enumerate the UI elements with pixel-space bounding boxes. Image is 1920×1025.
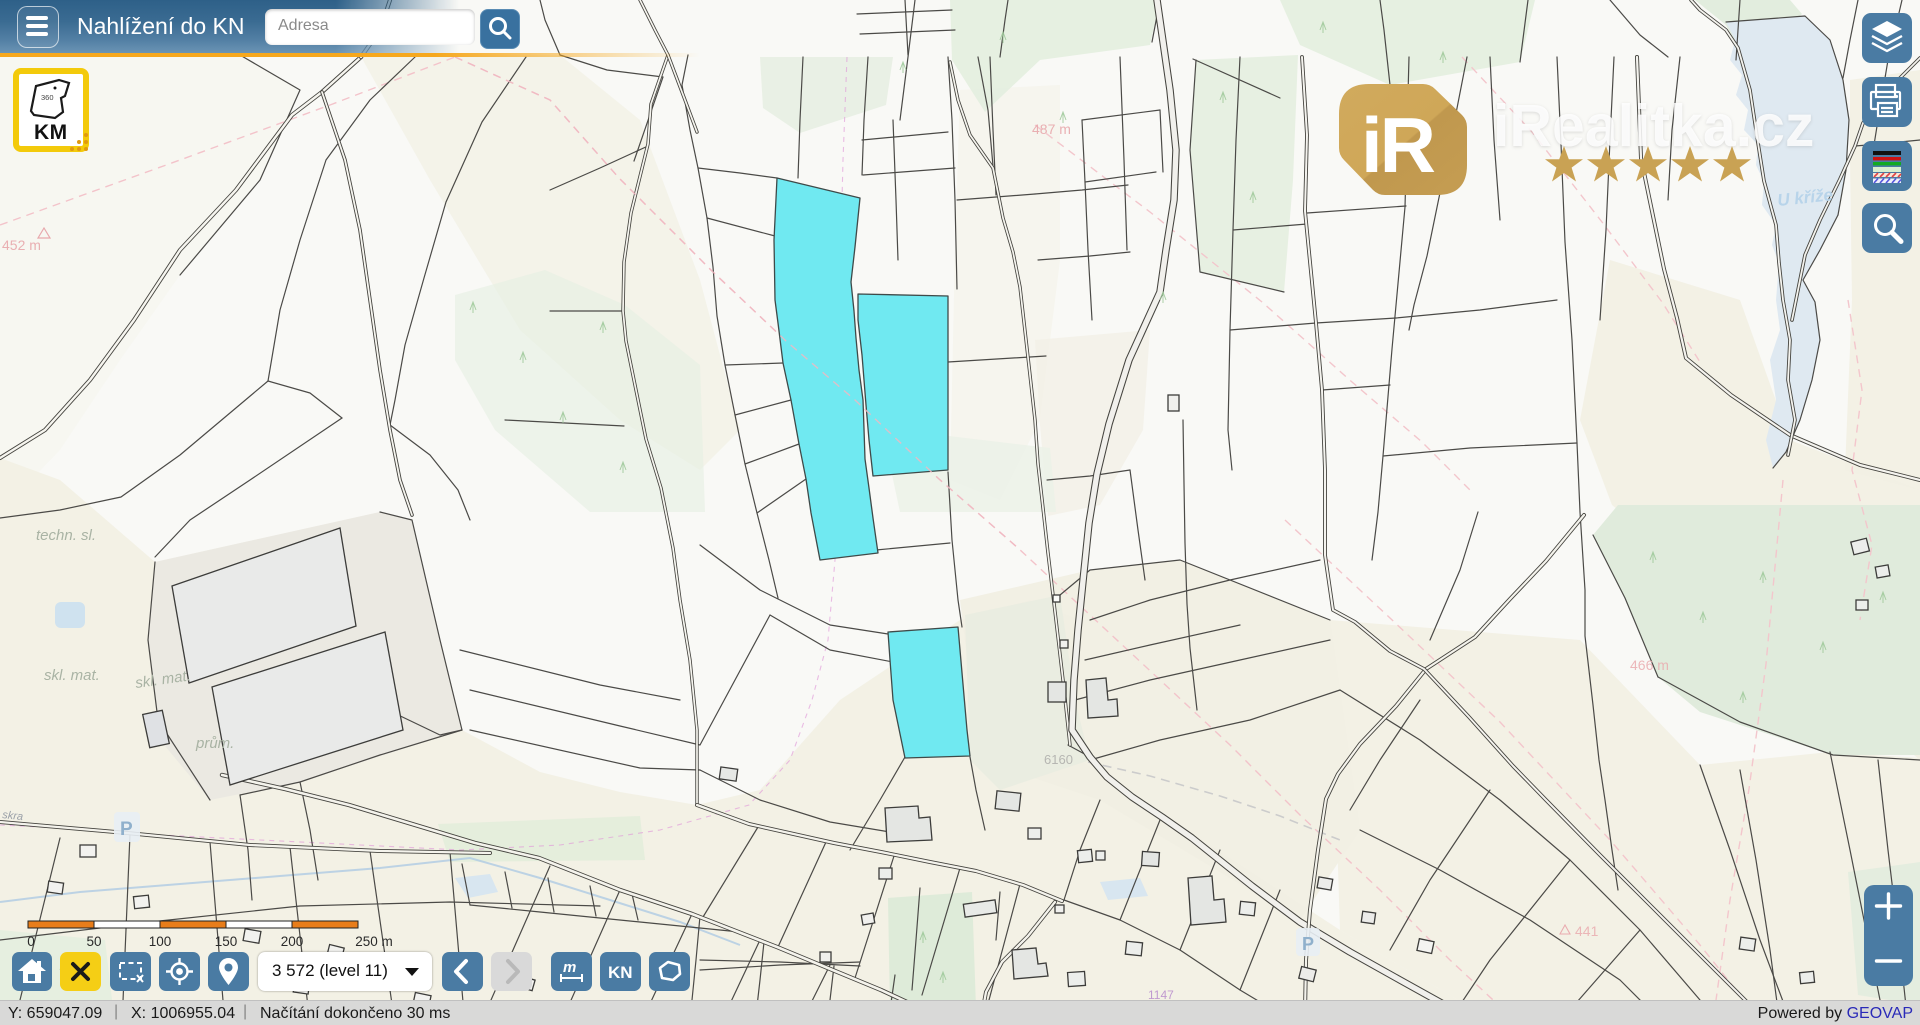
svg-text:techn. sl.: techn. sl. xyxy=(36,527,96,544)
svg-text:KM: KM xyxy=(34,121,68,144)
svg-text:150: 150 xyxy=(215,934,238,949)
svg-text:200: 200 xyxy=(281,934,304,949)
svg-text:P: P xyxy=(1302,934,1314,954)
svg-text:6160: 6160 xyxy=(1044,752,1073,767)
svg-text:250 m: 250 m xyxy=(355,934,393,949)
svg-text:m: m xyxy=(563,959,576,976)
svg-text:skl. mat.: skl. mat. xyxy=(44,667,100,684)
svg-text:iR: iR xyxy=(1361,101,1435,189)
svg-text:P: P xyxy=(120,819,133,840)
svg-text:466 m: 466 m xyxy=(1630,657,1669,673)
svg-text:487 m: 487 m xyxy=(1032,121,1071,137)
svg-text:0: 0 xyxy=(27,934,35,949)
svg-text:100: 100 xyxy=(149,934,172,949)
svg-text:skra: skra xyxy=(2,809,24,823)
svg-text:prům.: prům. xyxy=(195,735,234,752)
svg-text:452 m: 452 m xyxy=(2,237,41,253)
svg-text:441: 441 xyxy=(1575,923,1599,939)
svg-text:360: 360 xyxy=(41,93,54,102)
svg-text:50: 50 xyxy=(86,934,101,949)
svg-text:KN: KN xyxy=(608,963,633,982)
